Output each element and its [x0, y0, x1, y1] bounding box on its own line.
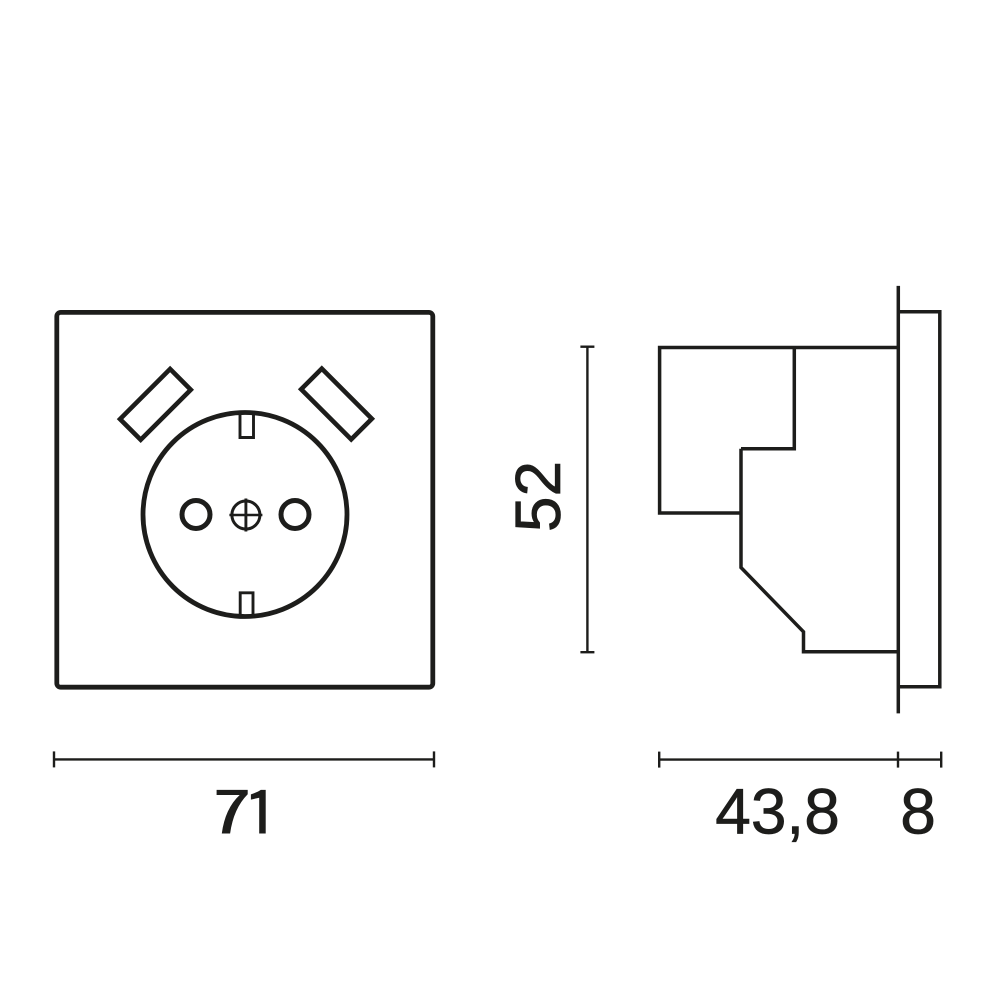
svg-text:43,8: 43,8 [715, 776, 840, 848]
svg-text:52: 52 [502, 461, 574, 532]
svg-text:8: 8 [900, 776, 936, 848]
